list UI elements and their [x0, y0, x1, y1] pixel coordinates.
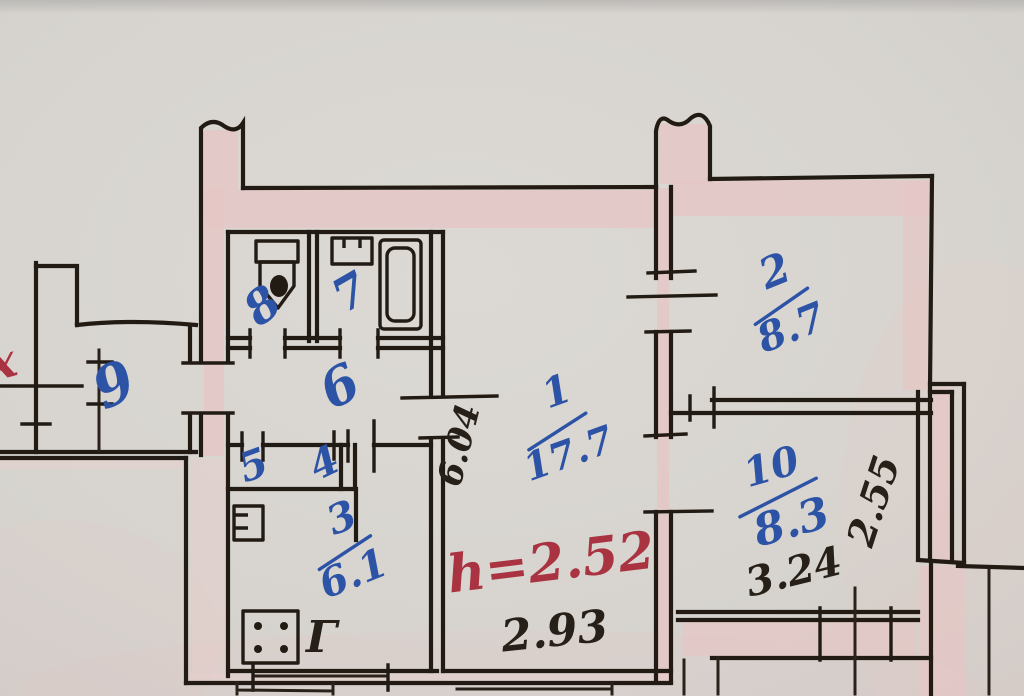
wall-right-upper — [930, 176, 932, 388]
highlight-room10-bottom-wall — [683, 622, 916, 656]
highlight-top-wall-left — [204, 190, 656, 228]
highlight-chimney-left — [204, 130, 238, 190]
highlight-bay-wall — [933, 388, 950, 564]
highlight-bottom-right-wall — [920, 566, 966, 696]
stove-burner-4 — [280, 645, 288, 653]
stove-burner-1 — [254, 622, 262, 630]
floor-plan-canvas: Γ 8 7 9 6 5 4 1 17.7 2 8.7 — [0, 0, 1024, 696]
highlight-lower-left-wall — [0, 459, 186, 469]
stove-burner-3 — [254, 645, 262, 653]
highlight-top-wall-right — [671, 180, 930, 216]
highlight-left-wall — [204, 188, 224, 456]
wall-top-right-section — [710, 176, 932, 179]
highlight-right-wall — [903, 182, 928, 390]
stove-burner-2 — [280, 622, 288, 630]
photo-top-shadow — [0, 0, 1024, 14]
gas-symbol: Γ — [304, 612, 340, 663]
highlight-kitchen-left-wall — [192, 459, 226, 677]
floor-plan-photo: Γ 8 7 9 6 5 4 1 17.7 2 8.7 — [0, 0, 1024, 696]
wall-top-left-section — [243, 187, 656, 188]
highlight-chimney-center — [659, 124, 708, 184]
